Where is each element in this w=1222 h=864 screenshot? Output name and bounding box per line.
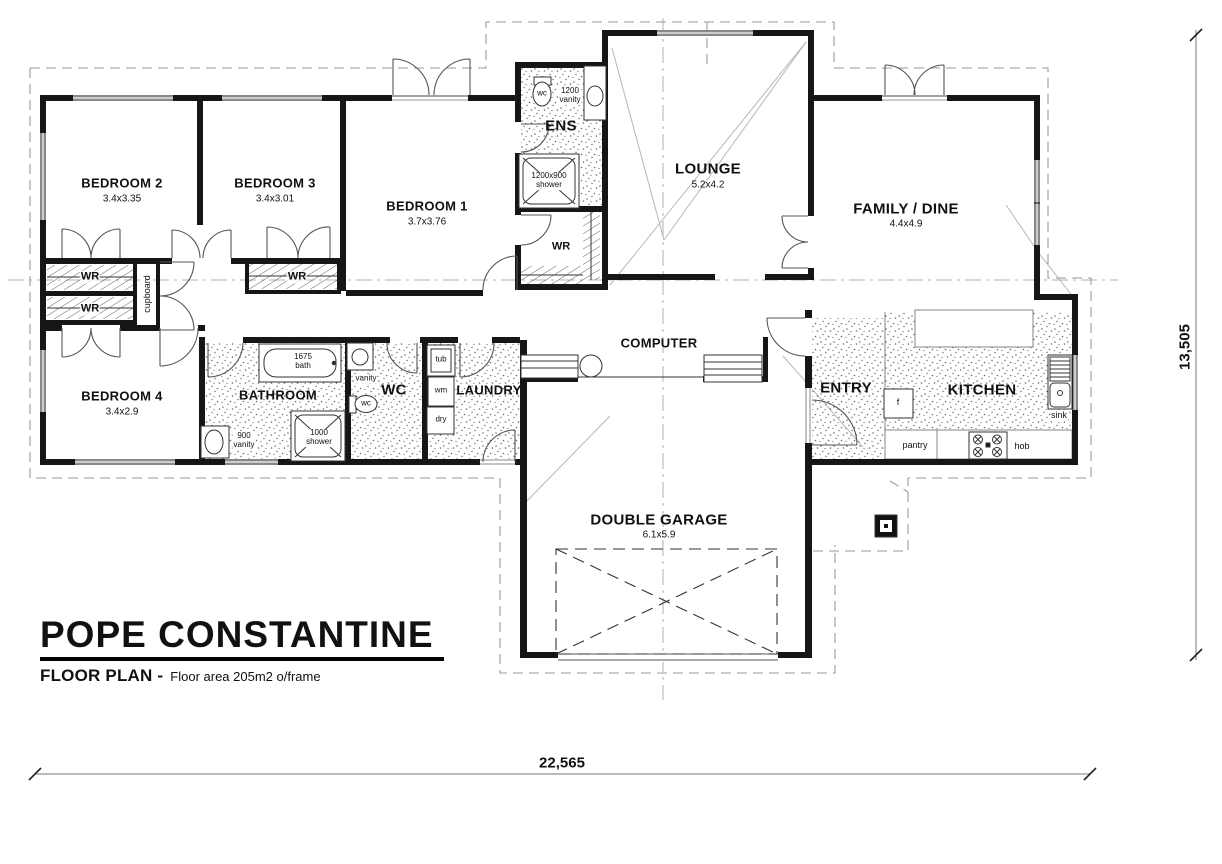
ens-vanity bbox=[584, 66, 606, 120]
wardrobe-label-2: WR bbox=[80, 303, 100, 316]
height-dimension: 13,505 bbox=[1176, 324, 1193, 370]
garage-door-band bbox=[558, 652, 778, 662]
room-label-ens: ENS bbox=[545, 117, 577, 134]
room-label-bathroom: BATHROOM bbox=[239, 389, 317, 404]
wardrobe-label-3: WR bbox=[287, 271, 307, 284]
bathroom-vanity-label: 900 vanity bbox=[233, 432, 256, 450]
room-label-kitchen: KITCHEN bbox=[948, 381, 1017, 398]
room-size-bedroom2: 3.4x3.35 bbox=[103, 193, 141, 205]
room-size-bedroom1: 3.7x3.76 bbox=[408, 216, 446, 228]
floor-plan-page: BEDROOM 2 3.4x3.35 BEDROOM 3 3.4x3.01 BE… bbox=[0, 0, 1222, 864]
plan-subtitle: FLOOR PLAN - bbox=[40, 666, 163, 686]
room-label-lounge: LOUNGE bbox=[675, 160, 741, 177]
wardrobe-label-4: WR bbox=[551, 241, 571, 254]
bathroom-shower-label: 1000 shower bbox=[305, 429, 333, 447]
room-label-laundry: LAUNDRY bbox=[456, 384, 521, 399]
room-label-bedroom3: BEDROOM 3 bbox=[234, 177, 315, 192]
room-label-bedroom1: BEDROOM 1 bbox=[386, 200, 467, 215]
cupboard-label: cupboard bbox=[142, 275, 152, 313]
room-label-computer: COMPUTER bbox=[621, 337, 698, 352]
ens-wc-label: wc bbox=[537, 90, 547, 99]
bath-label: 1675 bath bbox=[293, 353, 313, 371]
fridge-label: f bbox=[897, 398, 900, 408]
room-size-lounge: 5.2x4.2 bbox=[692, 179, 725, 191]
hob-label: hob bbox=[1014, 442, 1029, 452]
kitchen-sink bbox=[1048, 355, 1072, 409]
title-block: POPE CONSTANTINE FLOOR PLAN - Floor area… bbox=[40, 614, 444, 686]
room-size-bedroom4: 3.4x2.9 bbox=[106, 406, 139, 418]
pantry-label: pantry bbox=[902, 441, 927, 451]
room-size-family-dine: 4.4x4.9 bbox=[890, 218, 923, 230]
room-size-garage: 6.1x5.9 bbox=[643, 529, 676, 541]
wc-toilet-label: wc bbox=[361, 400, 371, 409]
bathroom-vanity bbox=[201, 426, 229, 458]
room-label-entry: ENTRY bbox=[820, 379, 872, 396]
plan-title: POPE CONSTANTINE bbox=[40, 614, 444, 661]
tub-label: tub bbox=[435, 356, 446, 365]
plan-area-note: Floor area 205m2 o/frame bbox=[170, 669, 320, 684]
ens-vanity-label: 1200 vanity bbox=[559, 87, 582, 105]
room-label-bedroom4: BEDROOM 4 bbox=[81, 390, 162, 405]
washing-machine-label: wm bbox=[435, 387, 447, 396]
room-label-wc: WC bbox=[381, 381, 407, 398]
room-label-garage: DOUBLE GARAGE bbox=[590, 511, 727, 528]
width-dimension: 22,565 bbox=[539, 754, 585, 771]
hob-burners bbox=[969, 432, 1007, 459]
dryer-label: dry bbox=[435, 416, 446, 425]
room-size-bedroom3: 3.4x3.01 bbox=[256, 193, 294, 205]
computer-desk bbox=[521, 355, 762, 382]
wc-vanity bbox=[347, 343, 373, 370]
room-label-bedroom2: BEDROOM 2 bbox=[81, 177, 162, 192]
floor-plan-drawing bbox=[0, 0, 1222, 864]
porch-post bbox=[875, 515, 897, 537]
sink-label: sink bbox=[1050, 411, 1068, 421]
garage-door-zone bbox=[556, 549, 777, 654]
room-label-family-dine: FAMILY / DINE bbox=[853, 200, 959, 217]
wardrobe-label-1: WR bbox=[80, 271, 100, 284]
wc-vanity-label: vanity bbox=[355, 375, 378, 384]
ens-shower-label: 1200x900 shower bbox=[530, 172, 567, 190]
